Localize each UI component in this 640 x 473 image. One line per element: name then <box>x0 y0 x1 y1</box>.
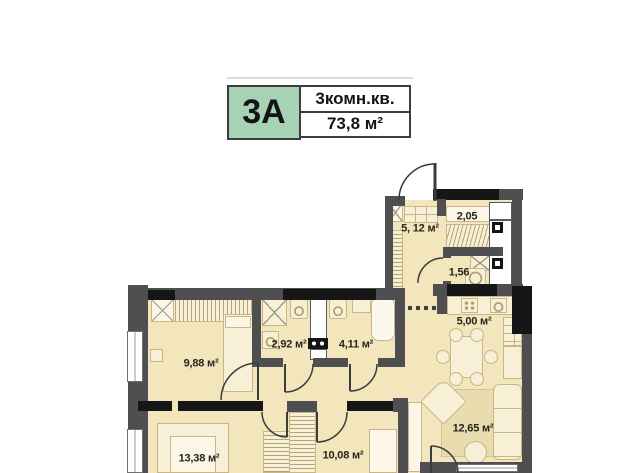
dining-chair <box>484 350 498 364</box>
kitchen-cabinet <box>503 346 522 379</box>
sink-bath2 <box>352 299 371 313</box>
floorplan-page: 3A 3комн.кв. 73,8 м² <box>0 0 640 473</box>
bathtub <box>371 297 395 341</box>
kitchen-counter <box>447 296 522 315</box>
wardrobe-bedroom2 <box>263 431 290 473</box>
room-label-bedroom-3: 10,08 м² <box>323 451 364 462</box>
dining-chair <box>449 372 463 386</box>
wall <box>512 189 522 289</box>
wall <box>178 401 263 411</box>
window-bedroom2 <box>127 429 143 473</box>
wall <box>443 247 503 256</box>
unit-code-box: 3A <box>227 85 301 140</box>
kitchen-sink <box>490 298 507 313</box>
room-label-closet: 2,05 <box>457 212 478 223</box>
wall <box>443 247 451 258</box>
vent-shaft-box <box>489 202 512 220</box>
room-label-bedroom-2: 13,38 м² <box>179 454 220 465</box>
wall <box>395 288 405 365</box>
floorplan: 5, 12 м² 2,05 1,56 5,00 м² 2,92 м² 4,11 … <box>0 0 640 473</box>
wall-exterior-right <box>522 334 532 473</box>
wall <box>287 401 317 412</box>
wall <box>437 199 446 216</box>
dresser-bedroom3 <box>369 429 397 473</box>
sofa <box>493 384 522 460</box>
room-label-hallway: 5, 12 м² <box>401 224 439 235</box>
room-label-bedroom-1: 9,88 м² <box>184 359 219 370</box>
wall <box>283 289 376 300</box>
apartment-badge: 3A 3комн.кв. 73,8 м² <box>227 85 411 140</box>
badge-info: 3комн.кв. 73,8 м² <box>299 85 411 140</box>
wall <box>313 358 348 367</box>
room-label-kitchen: 5,00 м² <box>457 317 492 328</box>
dining-chair <box>470 328 484 342</box>
toilet-bath2 <box>329 299 347 319</box>
vent-grille <box>492 222 503 233</box>
wall <box>252 296 261 363</box>
coffee-table <box>464 441 487 464</box>
wall <box>385 196 393 292</box>
window-bedroom1 <box>127 331 143 382</box>
vent-grille-mid <box>308 338 328 349</box>
apartment-type-label: 3комн.кв. <box>299 85 411 113</box>
entry-door-arc <box>399 164 435 200</box>
dining-chair <box>449 328 463 342</box>
toilet-bath1 <box>290 299 308 319</box>
nightstand <box>150 349 163 362</box>
room-label-bathroom-small: 1,56 <box>449 268 470 279</box>
wall <box>447 284 497 296</box>
stove <box>461 298 478 313</box>
corridor-wardrobe <box>289 412 316 473</box>
shoe-shelf <box>404 206 438 223</box>
room-label-bathroom-1: 2,92 м² <box>272 340 307 351</box>
dining-chair <box>436 350 450 364</box>
pillow-bedroom1 <box>225 316 251 328</box>
wall <box>437 284 447 314</box>
apartment-area-label: 73,8 м² <box>299 111 411 139</box>
wall <box>347 401 396 411</box>
wall <box>512 286 532 334</box>
wall <box>398 400 408 473</box>
window-living <box>456 464 518 472</box>
room-label-bathroom-2: 4,11 м² <box>339 340 373 351</box>
dining-chair <box>470 372 484 386</box>
wall <box>138 401 172 411</box>
wall <box>252 358 283 367</box>
vent-grille <box>492 258 503 269</box>
wardrobe-corner-box <box>151 299 174 322</box>
room-label-living-room: 12,65 м² <box>453 424 494 435</box>
unit-code: 3A <box>242 93 285 132</box>
shower <box>262 299 287 326</box>
